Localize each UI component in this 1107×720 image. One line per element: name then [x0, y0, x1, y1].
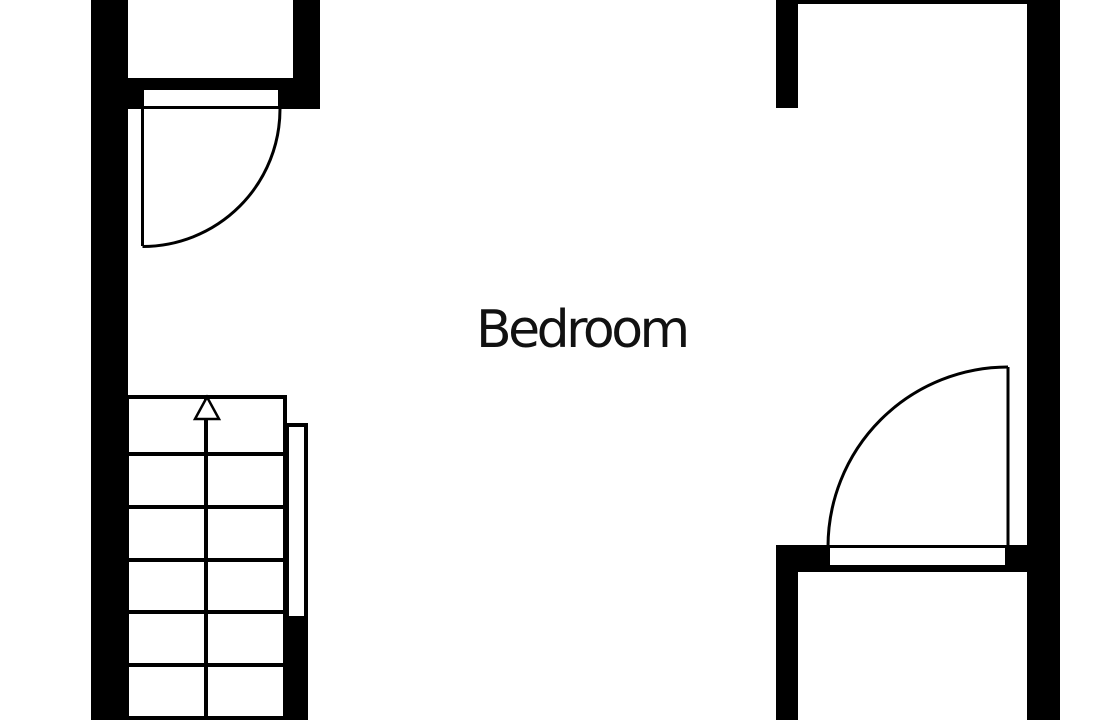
stairs-up-arrow-icon [195, 397, 219, 419]
floorplan-canvas: Bedroom [0, 0, 1107, 720]
right-door-swing-arc-icon [828, 367, 1008, 547]
floorplan-symbols-layer [0, 0, 1107, 720]
left-door-swing-arc-icon [143, 109, 281, 247]
